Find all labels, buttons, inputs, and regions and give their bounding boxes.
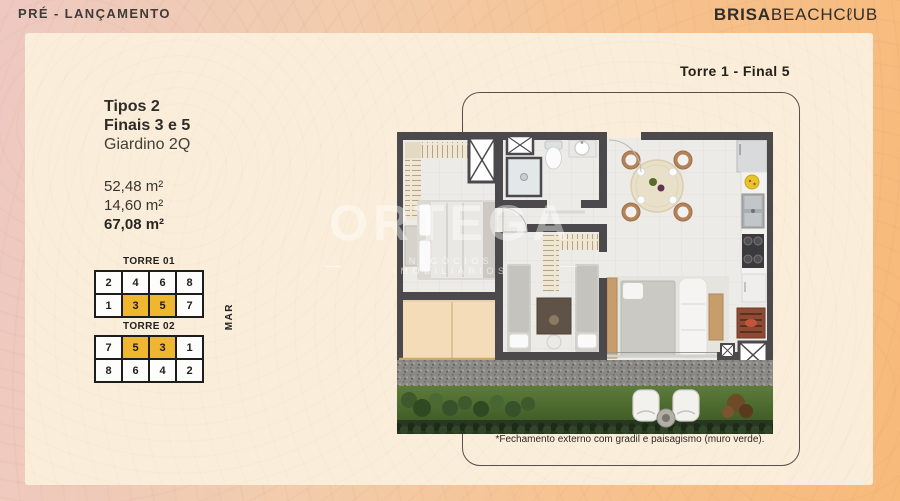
private-patio: [403, 300, 499, 360]
unit-finals: Finais 3 e 5: [104, 116, 190, 135]
unit-cell: 1: [96, 295, 121, 316]
unit-cell: 2: [177, 360, 202, 381]
desk-chair: [547, 335, 561, 349]
unit-cell: 2: [96, 272, 121, 293]
fruit-bowl: [745, 175, 759, 189]
double-bed: [417, 200, 497, 280]
stone-terrace: [397, 360, 773, 386]
tower-01-grid: TORRE 01 2 4 6 8 1 3 5 7: [93, 256, 205, 318]
fridge: [737, 140, 767, 172]
side-table: [709, 294, 723, 340]
dresser: [405, 226, 418, 266]
unit-info-block: Tipos 2 Finais 3 e 5 Giardino 2Q 52,48 m…: [104, 97, 190, 234]
shower: [507, 158, 541, 196]
brand-light-part: BEACHCℓUB: [771, 5, 878, 24]
unit-cell: 6: [123, 360, 148, 381]
floor-plan: [395, 128, 775, 438]
sea-direction-label: MAR: [224, 303, 235, 330]
plan-footnote: *Fechamento externo com gradil e paisagi…: [472, 434, 788, 445]
single-bed: [507, 264, 531, 352]
area-total: 67,08 m²: [104, 215, 190, 234]
area-list: 52,48 m² 14,60 m² 67,08 m²: [104, 177, 190, 234]
toilet: [545, 141, 562, 169]
tower-02-title: TORRE 02: [93, 321, 205, 332]
garden-chair: [673, 390, 699, 421]
single-bed: [575, 264, 599, 352]
page: PRÉ - LANÇAMENTO BRISABEACHCℓUB Tipos 2 …: [0, 0, 900, 501]
unit-cell-highlighted: 3: [150, 337, 175, 358]
unit-cell: 4: [150, 360, 175, 381]
unit-cell: 7: [177, 295, 202, 316]
dining-area: [622, 151, 692, 221]
tower-01-title: TORRE 01: [93, 256, 205, 267]
terrace-garden: [397, 360, 773, 434]
unit-cell: 7: [96, 337, 121, 358]
pre-launch-label: PRÉ - LANÇAMENTO: [18, 6, 171, 21]
hedge: [397, 420, 773, 434]
area-private: 52,48 m²: [104, 177, 190, 196]
plan-title: Torre 1 - Final 5: [562, 63, 790, 79]
dining-table: [631, 160, 683, 212]
shaft-icon: [507, 136, 533, 154]
daybed: [621, 281, 675, 355]
unit-cell: 8: [177, 272, 202, 293]
kitchen: [737, 140, 767, 302]
unit-plan-type: Giardino 2Q: [104, 135, 190, 154]
unit-cell-highlighted: 5: [150, 295, 175, 316]
tv-panel: [607, 278, 617, 358]
tower-02-grid: TORRE 02 7 5 3 1 8 6 4 2: [93, 321, 205, 383]
unit-cell-highlighted: 5: [123, 337, 148, 358]
unit-cell: 6: [150, 272, 175, 293]
bbq-area: [737, 308, 765, 338]
brand-logo: BRISABEACHCℓUB: [714, 5, 878, 25]
unit-types: Tipos 2: [104, 97, 190, 116]
brand-bold-part: BRISA: [714, 5, 771, 24]
garden-chair: [633, 390, 659, 421]
shaft-icon: [469, 138, 495, 182]
tower-01-units: 2 4 6 8 1 3 5 7: [94, 270, 204, 318]
garden-table: [657, 409, 675, 427]
kitchen-sink: [742, 194, 764, 228]
shaft-icon-small: [721, 344, 734, 357]
stove: [742, 234, 764, 268]
unit-cell: 1: [177, 337, 202, 358]
unit-cell: 8: [96, 360, 121, 381]
area-garden: 14,60 m²: [104, 196, 190, 215]
bathroom-sink: [569, 140, 596, 157]
tower-02-units: 7 5 3 1 8 6 4 2: [94, 335, 204, 383]
unit-cell-highlighted: 3: [123, 295, 148, 316]
unit-cell: 4: [123, 272, 148, 293]
living-room: [607, 276, 729, 358]
sofa: [679, 278, 707, 358]
